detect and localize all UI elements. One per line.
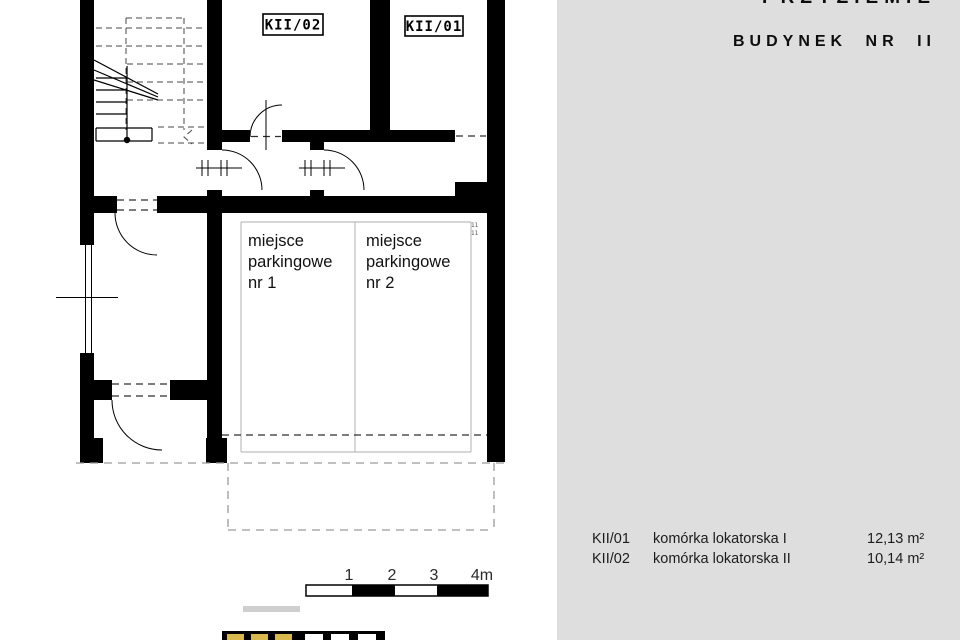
scale-bar: 1 2 3 4m <box>306 567 493 596</box>
svg-text:nr 1: nr 1 <box>248 274 276 292</box>
wall-note-text: 11 <box>471 222 479 229</box>
legend-code: KII/01 <box>592 531 630 547</box>
divider-wall-top <box>207 0 222 150</box>
info-panel: PRZYZIEMIE BUDYNEK NR II KII/01 komórka … <box>557 0 960 640</box>
key-plan-roof-line <box>243 606 300 612</box>
svg-text:parkingowe: parkingowe <box>366 253 450 271</box>
window <box>56 245 118 353</box>
stub-wall-top <box>310 142 324 150</box>
screenshot-root: 11 11 KII/02 KII/01 miejsce parkingowe n… <box>0 0 960 640</box>
key-plan-cell <box>305 634 323 640</box>
scale-tick-3: 3 <box>430 567 439 584</box>
wall-foot-left <box>80 438 103 463</box>
parking-space-label-1: miejsce parkingowe nr 1 <box>248 232 332 292</box>
key-plan-cell <box>358 634 376 640</box>
stairs <box>94 18 204 144</box>
wall-note-text: 11 <box>471 230 479 237</box>
legend-name: komórka lokatorska I <box>653 531 787 547</box>
door-arc-hall <box>115 213 157 255</box>
exterior-wall-right <box>487 0 505 462</box>
garage-top-wall <box>157 196 455 213</box>
key-plan-cell-highlighted <box>227 634 244 640</box>
room-label-kii01: KII/01 <box>406 19 463 35</box>
hall-bottom-wall-left <box>80 380 112 400</box>
parking-space-label-2: miejsce parkingowe nr 2 <box>366 232 450 292</box>
svg-text:nr 2: nr 2 <box>366 274 394 292</box>
door-arc-lower-room <box>112 400 162 450</box>
divider-wall-bottom <box>207 190 222 463</box>
doors <box>112 100 486 450</box>
kii02-bottom-wall-left <box>222 130 250 142</box>
door-arc-vestibule-1 <box>222 150 262 190</box>
site-key-plan <box>222 606 385 640</box>
stair-newel <box>124 137 130 143</box>
wall-foot-mid <box>206 438 227 463</box>
exterior-wall-left-top <box>80 0 94 245</box>
legend: KII/01 komórka lokatorska I 12,13 m² KII… <box>557 0 960 640</box>
scale-tick-1: 1 <box>345 567 354 584</box>
scale-tick-2: 2 <box>388 567 397 584</box>
room-labels: KII/02 KII/01 <box>263 14 463 36</box>
kii01-bottom-wall <box>390 130 455 142</box>
svg-text:miejsce: miejsce <box>366 232 422 250</box>
legend-code: KII/02 <box>592 551 630 567</box>
hall-top-wall <box>94 196 117 213</box>
key-plan-cell-highlighted <box>275 634 292 640</box>
legend-area: 12,13 m² <box>867 531 924 547</box>
kii02-bottom-wall-right <box>282 130 370 142</box>
key-plan-cell-highlighted <box>251 634 268 640</box>
wall-notch <box>455 182 487 213</box>
svg-text:miejsce: miejsce <box>248 232 304 250</box>
legend-name: komórka lokatorska II <box>653 551 791 567</box>
scale-tick-4: 4m <box>471 567 493 584</box>
stair-direction-arrow <box>184 130 192 144</box>
legend-row: KII/01 komórka lokatorska I 12,13 m² <box>557 531 960 551</box>
svg-text:parkingowe: parkingowe <box>248 253 332 271</box>
legend-row: KII/02 komórka lokatorska II 10,14 m² <box>557 551 960 571</box>
hall-bottom-wall-right <box>170 380 222 400</box>
legend-area: 10,14 m² <box>867 551 924 567</box>
key-plan-cell <box>331 634 349 640</box>
room-label-kii02: KII/02 <box>265 18 322 34</box>
room-divider-wall <box>370 0 390 142</box>
